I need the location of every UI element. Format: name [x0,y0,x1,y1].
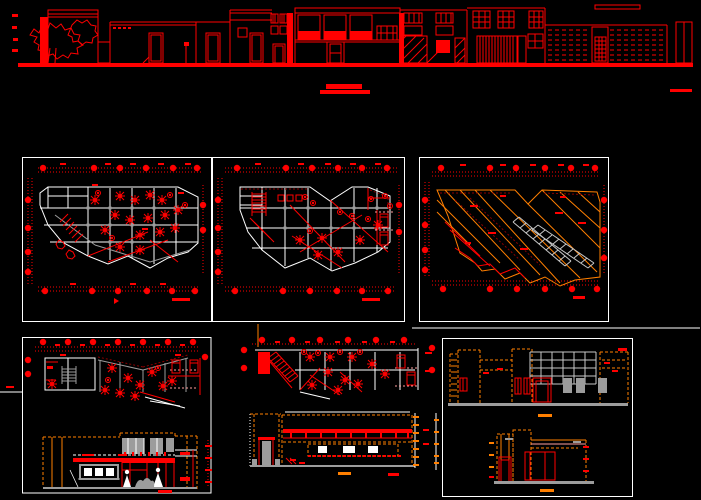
floor-plan-2[interactable] [213,158,405,322]
rear-door [499,457,511,482]
upper-curtain-wall [122,438,174,456]
title-mark [538,414,552,417]
beam-band [283,429,412,438]
roof-slope-lines [437,190,600,283]
furniture [90,190,188,255]
building-3 [196,22,230,63]
glass-block-tower [592,27,608,63]
floor-plan-1[interactable] [23,158,212,322]
building-section [250,412,439,476]
hidden-lines [440,193,595,265]
partial-plan-b[interactable] [241,324,439,476]
cad-drawing-canvas [0,0,701,500]
entry-door [533,378,551,402]
roof-plan[interactable] [420,158,609,322]
scale-bar [362,298,380,301]
title-mark [388,473,399,476]
scale-bar [573,296,585,299]
level-ticks [413,413,439,470]
ground-line [494,481,594,484]
building-8 [467,8,545,63]
stair-hatch [60,214,83,242]
title-mark [540,489,554,492]
columns [261,207,379,230]
section-door [252,437,280,466]
grid-bubbles [422,165,607,292]
front-elevation [448,348,628,417]
building-5 [271,13,293,63]
rear-elevation [489,430,594,492]
window-box [78,465,120,479]
scale-bar [172,298,190,301]
building-4 [230,10,272,63]
north-arrow [114,298,119,304]
slatted-garage-door [477,36,517,63]
cad-viewport [0,0,701,500]
gutter-lines [445,222,525,278]
furniture [295,194,393,261]
rear-window [525,452,555,480]
sheet-border [23,158,212,322]
ground-line [18,63,693,67]
building-7 [400,10,467,63]
title-mark [158,490,172,493]
dimension-lines [35,347,200,351]
building-2 [110,22,196,63]
title-mark [320,84,692,94]
ground-line [448,403,628,406]
street-elevation[interactable] [12,5,693,67]
dimension-text-marks [255,163,381,165]
building-9 [545,5,692,63]
dimension-text-marks [55,344,185,356]
partial-plan [45,355,200,408]
partial-plan-a[interactable] [0,338,212,494]
interior-room [286,444,402,464]
people-silhouettes [123,468,163,487]
partial-plan [255,348,418,399]
building-6 [295,8,404,63]
section-elevation [43,433,197,493]
elevation-sheet[interactable] [443,339,633,497]
right-bay [175,450,197,487]
dimension-ticks [12,14,18,52]
sheet-border [23,338,212,494]
hatched-garage-door [402,36,427,63]
